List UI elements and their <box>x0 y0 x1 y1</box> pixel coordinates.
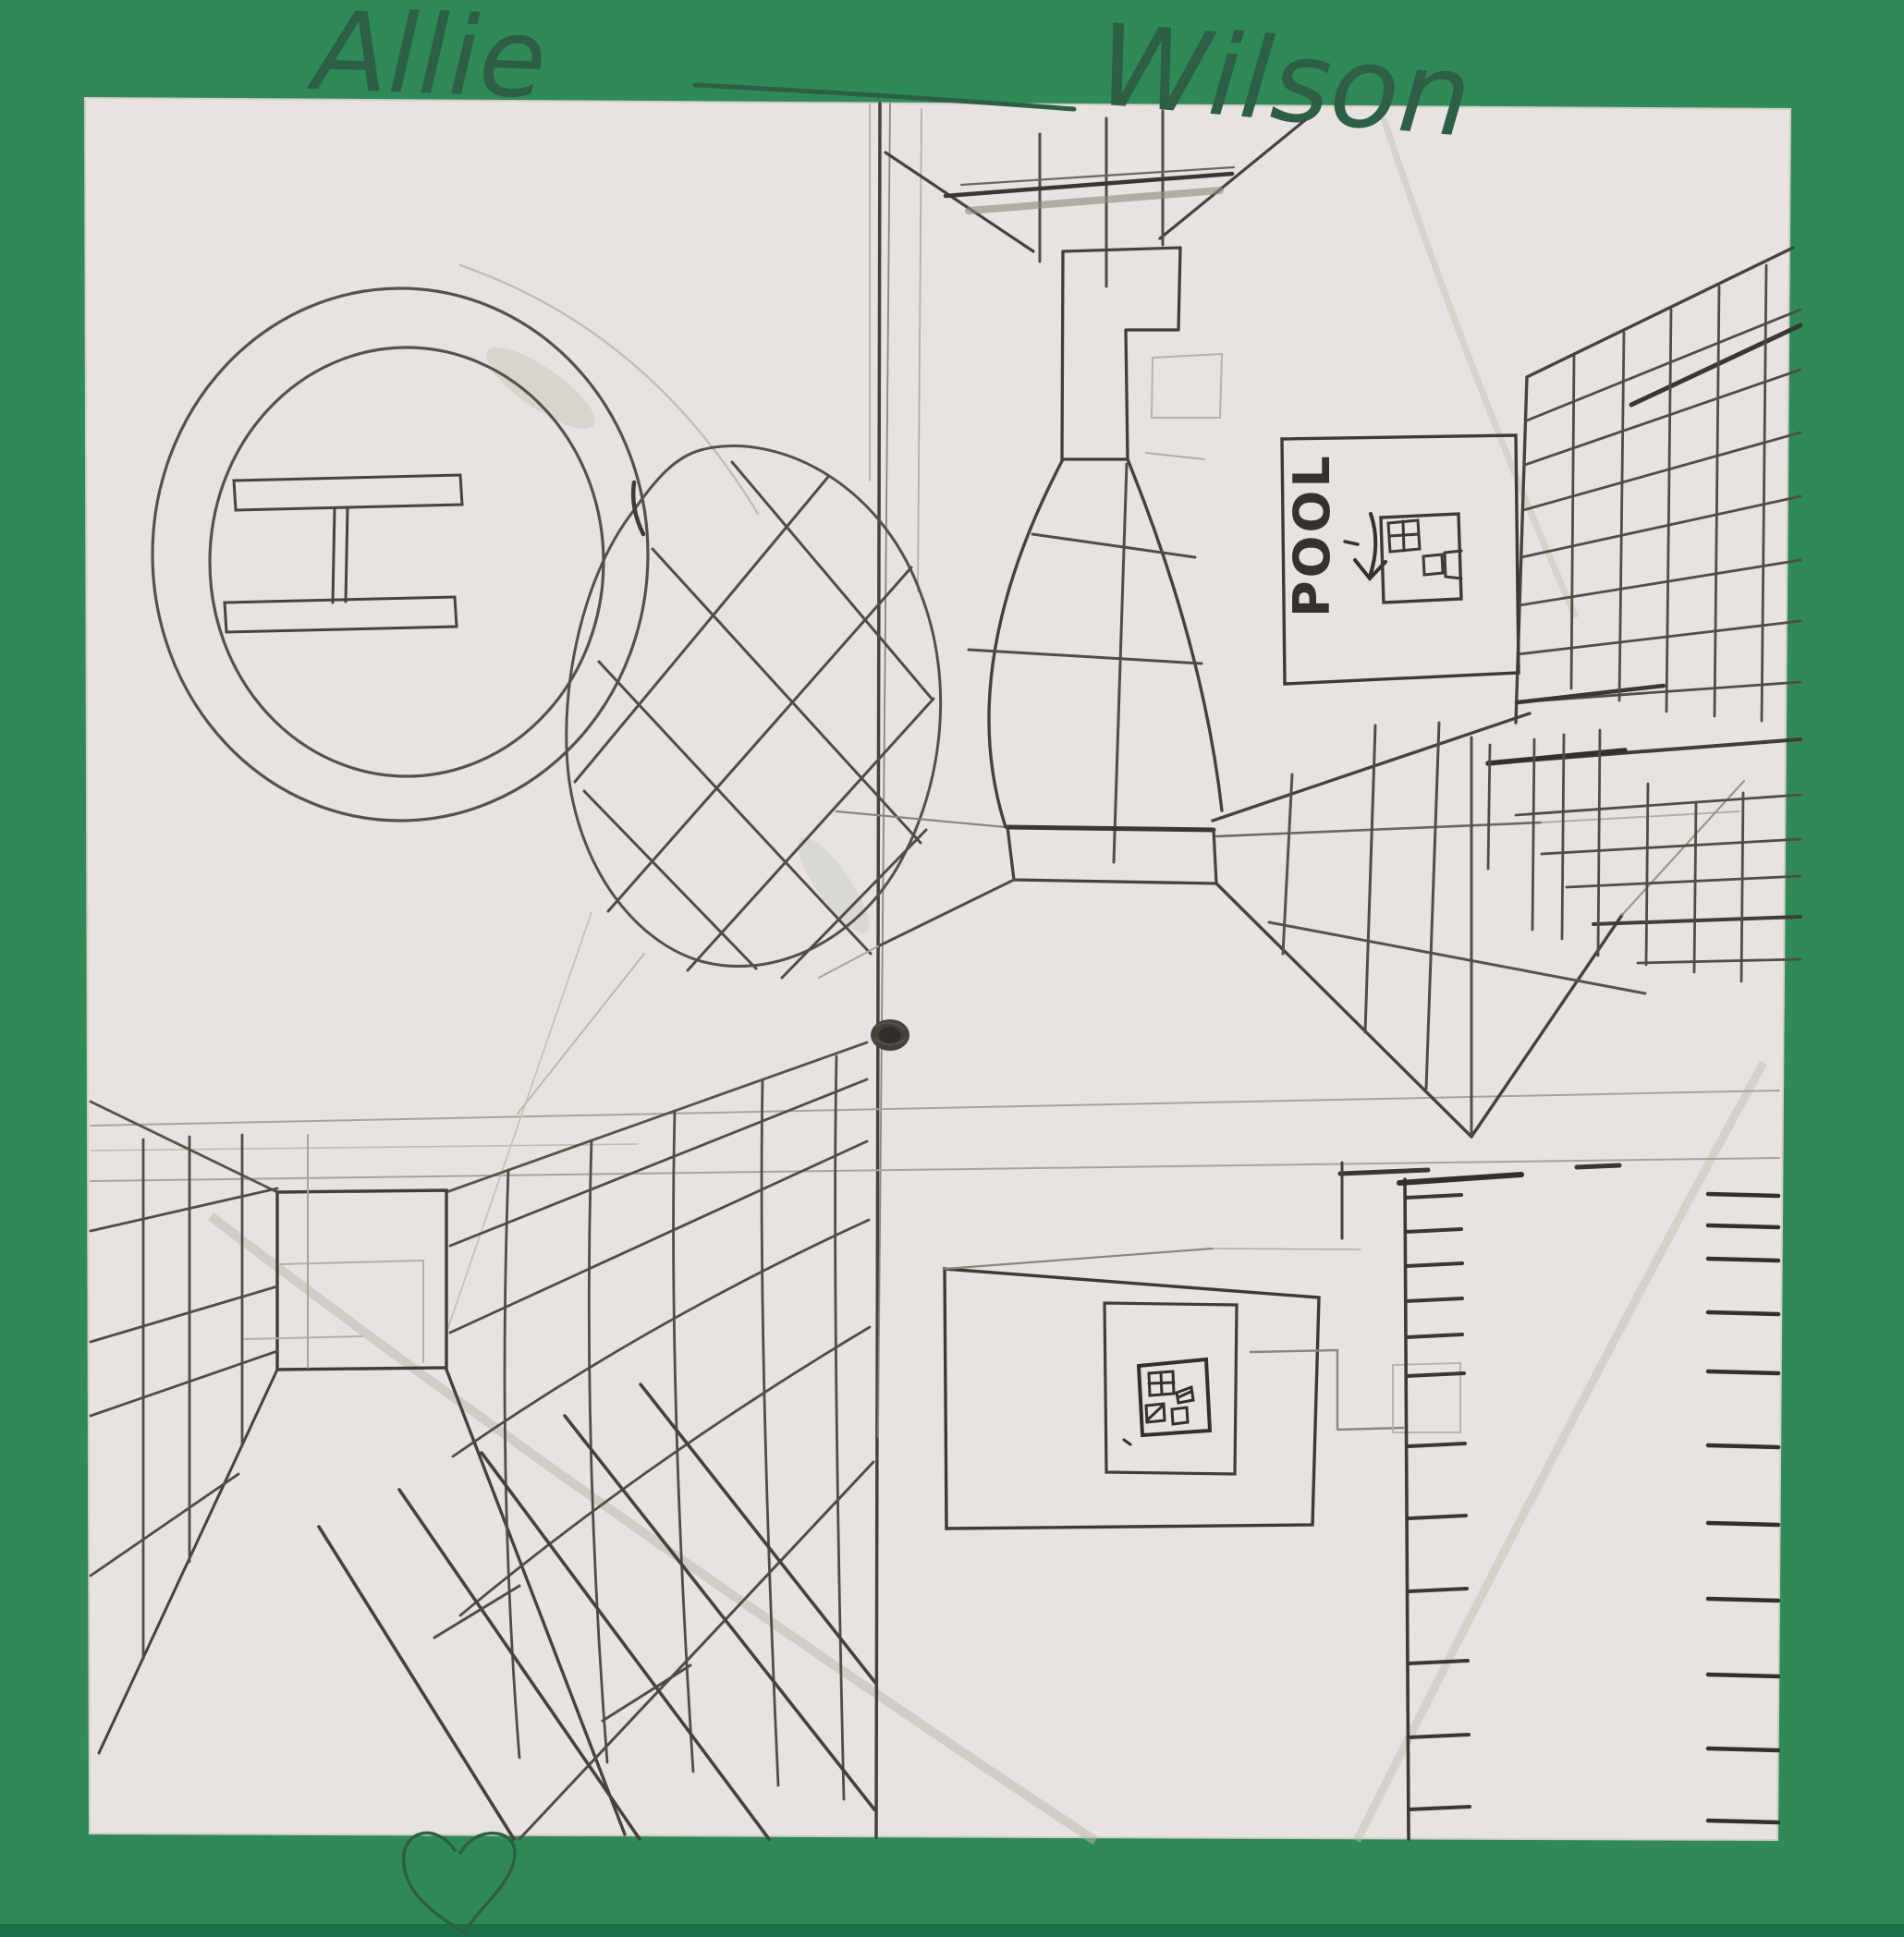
green-mat-shadow-edge <box>0 1924 1904 1937</box>
drawing-photo: Allie Wilson <box>0 0 1904 1937</box>
vanishing-point-dot <box>871 1019 909 1051</box>
signature-first-name: Allie <box>305 0 548 123</box>
pool-sign-label: POOL <box>1283 453 1341 617</box>
photo-of-student-drawing: Allie Wilson <box>0 0 1904 1937</box>
